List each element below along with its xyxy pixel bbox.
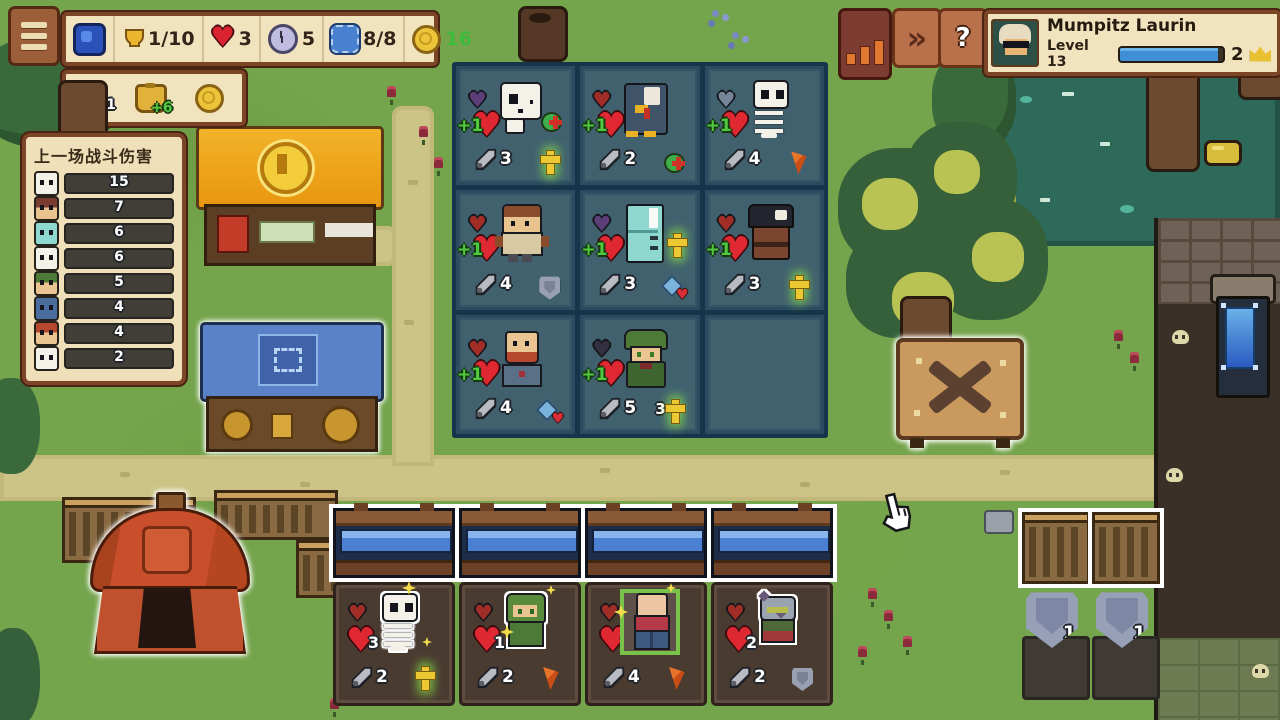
road-texture [120,472,130,477]
attack-stat: 4 [474,396,512,420]
shop-progress-bar [718,529,830,553]
dungeon-area [1154,218,1280,720]
board-cell[interactable]: ♥ ♥ +1 4 [456,190,575,309]
attack-stat: 2 [350,665,388,689]
resource-bar: 1/10 ♥3 5 8/8 16 [62,12,438,66]
road-texture [300,482,310,487]
item-icon [537,274,563,300]
unit-sprite [743,204,795,262]
sword-icon [723,272,747,296]
bush [0,628,40,720]
flower-decor [903,636,912,647]
fast-forward-icon: » [907,18,928,58]
board-cell[interactable]: ♥ ♥ +1 4 [456,315,575,434]
sword-icon [728,665,752,689]
item-icon [790,665,816,691]
unit-sprite [494,329,546,387]
unit-sprite [618,80,670,138]
sword-icon [598,272,622,296]
coin-icon [195,84,224,113]
road-texture [1000,470,1010,475]
unit-mini-icon [34,346,59,371]
tent[interactable] [86,504,248,656]
shop-progress-bar [340,529,452,553]
hp-buff: +1 [581,116,607,136]
item-icon [537,149,563,175]
damage-row: 15 [34,171,174,196]
item-icon [662,149,688,175]
road-texture [600,468,610,473]
attack-stat: 2 [598,147,636,171]
sword-icon [476,665,500,689]
attack-stat: 3 [723,272,761,296]
damage-row: 7 [34,196,174,221]
damage-bar: 7 [64,198,174,219]
menu-button[interactable] [8,6,60,66]
resource-gem [66,16,115,62]
sword-icon [350,665,374,689]
flower-decor [387,86,396,97]
board-cell[interactable]: ♥ ♥ +1 5 3 [580,315,699,434]
board-cell[interactable]: ♥ ♥ +1 2 [580,66,699,185]
resource-timer: 5 [261,16,324,62]
sword-icon [723,147,747,171]
resource-capacity: 8/8 [324,16,405,62]
unit-sprite [750,593,802,651]
stats-button[interactable] [838,8,892,80]
resource-lives: ♥3 [204,16,261,62]
unit-sprite [372,593,424,651]
skull-decor [1172,330,1189,344]
rock-decor [984,510,1014,534]
flower-decor [868,588,877,599]
shop-progress-bar [466,529,578,553]
attack-stat: 3 [474,147,512,171]
portal-glow [1227,309,1253,367]
shop-slot[interactable]: ♥ ♥ 3 2 [333,582,455,706]
road-vertical [392,106,434,466]
unit-mini-icon [34,196,59,221]
tree-stump [518,6,568,62]
attack-stat: 4 [723,147,761,171]
board-cell[interactable]: ♥ ♥ +1 3 [456,66,575,185]
unit-mini-icon [34,271,59,296]
damage-panel-title: 上一场战斗伤害 [34,143,174,167]
damage-row: 6 [34,246,174,271]
shop-slot-selected[interactable]: ♥ ♥ 2 4 [585,582,707,706]
item-stand [1092,512,1160,584]
dungeon-portal[interactable] [1216,296,1270,398]
shop-counter [711,508,833,578]
flower-decor [1130,352,1139,363]
hp-buff: +1 [457,116,483,136]
attack-stat: 2 [728,665,766,689]
board-cell-empty[interactable] [705,315,824,434]
item-icon [664,665,690,691]
sword-icon [598,147,622,171]
skull-decor [1252,664,1269,678]
avatar [991,19,1039,67]
skull-decor [1166,468,1183,482]
sword-icon [598,396,622,420]
shop-progress-bar [592,529,704,553]
gem-icon [73,23,106,56]
item-mat [1022,636,1090,700]
item-icon [664,108,690,134]
sword-icon [474,147,498,171]
board-cell[interactable]: ♥ ♥ +1 3 [705,190,824,309]
question-icon: ? [955,23,970,53]
damage-row: 4 [34,296,174,321]
resource-gold: 16 [405,16,478,62]
item-icon [539,108,565,134]
tree-highlight [862,178,918,230]
item-stand [1022,512,1090,584]
item-icon [662,398,688,424]
unit-mini-icon [34,246,59,271]
damage-bar: 6 [64,223,174,244]
sparkle-icon [666,583,676,593]
road-texture [800,482,810,487]
player-panel[interactable]: Mumpitz Laurin Level 13 2 [984,10,1280,76]
hp-buff: +1 [706,240,732,260]
item-icon [537,398,563,424]
unit-sprite [494,204,546,262]
player-level: Level 13 [1047,38,1112,70]
unit-sprite [624,593,676,651]
gold-stall[interactable] [196,126,378,264]
damage-bar: 4 [64,298,174,319]
blue-flower [712,10,719,17]
damage-row: 6 [34,221,174,246]
water-sparkle [1100,142,1110,146]
sword-icon [474,272,498,296]
road-texture [408,180,418,185]
damage-bar: 6 [64,248,174,269]
battle-crate[interactable] [896,338,1024,440]
game-screen: ♥ ♥ +1 3 ♥ ♥ +1 2 ♥ [0,0,1280,720]
hp-buff: +1 [457,365,483,385]
shop-slot[interactable]: ♥ ♥ 1 2 [459,582,581,706]
item-mat [1092,636,1160,700]
item-icon [786,274,812,300]
heart-icon: ♥ [211,28,235,50]
lily-pad [1020,96,1032,103]
shop-counter [585,508,707,578]
lily-pad [1120,205,1134,213]
flower-decor [1114,330,1123,341]
item-icon [412,665,438,691]
item-stall[interactable] [200,322,378,452]
resource-trophy: 1/10 [115,16,204,62]
item-icon [664,232,690,258]
flower-decor [884,610,893,621]
shop-counter [459,508,581,578]
gold-pouch-icon: +6 [135,84,167,113]
hp-buff: +1 [706,116,732,136]
capacity-icon [331,25,359,53]
flower-decor [434,157,443,168]
attack-stat: 2 [476,665,514,689]
crown-count: 2 [1231,44,1244,65]
item-icon [538,665,564,691]
unit-sprite [498,593,550,651]
damage-bar: 2 [64,348,174,369]
item-stall-counter [206,396,378,452]
crate-feet [910,438,924,448]
coin-icon [412,25,441,54]
gold-stall-counter [204,204,376,266]
item-icon [662,274,688,300]
stone-tiles [1158,638,1280,720]
unit-sprite [618,329,670,387]
sword-icon [474,396,498,420]
damage-report-panel: 上一场战斗伤害 15 7 6 6 5 4 4 [22,133,186,385]
crate-nails [916,358,922,364]
shop-slot[interactable]: ♥ ♥ 2 2 [711,582,833,706]
shop-counter [333,508,455,578]
damage-row: 2 [34,346,174,371]
attack-stat: 4 [474,272,512,296]
blue-flower [732,32,739,39]
unit-mini-icon [34,221,59,246]
unit-sprite [494,80,546,138]
unit-mini-icon [34,321,59,346]
attack-stat: 3 [598,272,636,296]
damage-bar: 5 [64,273,174,294]
item-icon [786,149,812,175]
flower-decor [858,646,867,657]
trophy-icon [122,28,144,50]
water-sparkle [1040,198,1050,202]
fast-forward-button[interactable]: » [892,8,942,68]
tent-roof [90,508,250,592]
unit-mini-icon [34,296,59,321]
hp-buff: +1 [581,365,607,385]
board-cell[interactable]: ♥ ♥ +1 3 [580,190,699,309]
damage-row: 5 [34,271,174,296]
gold-nugget [1204,140,1242,166]
damage-bar: 4 [64,323,174,344]
xp-fill [1120,48,1218,61]
awning-emblem [258,334,318,386]
damage-row: 4 [34,321,174,346]
clock-icon [268,24,298,54]
board-cell[interactable]: ♥ ♥ +1 4 [705,66,824,185]
unit-sprite [618,204,670,262]
help-button[interactable]: ? [938,8,988,68]
xp-bar [1118,46,1225,63]
water-sparkle [1062,92,1074,96]
unit-board: ♥ ♥ +1 3 ♥ ♥ +1 2 ♥ [452,62,828,438]
coin-emblem [260,142,312,194]
attack-stat: 5 [598,396,636,420]
crown-icon [1250,47,1271,62]
attack-stat: 4 [602,665,640,689]
player-name: Mumpitz Laurin [1047,16,1271,36]
hp-buff: +1 [457,240,483,260]
sword-icon [602,665,626,689]
unit-sprite [743,80,795,138]
unit-mini-icon [34,171,59,196]
hp-buff: +1 [581,240,607,260]
damage-bar: 15 [64,173,174,194]
flower-decor [419,126,428,137]
tent-entrance [138,588,196,648]
tree-highlight [972,232,1024,282]
road-texture [404,320,414,325]
tree-highlight [934,150,980,194]
